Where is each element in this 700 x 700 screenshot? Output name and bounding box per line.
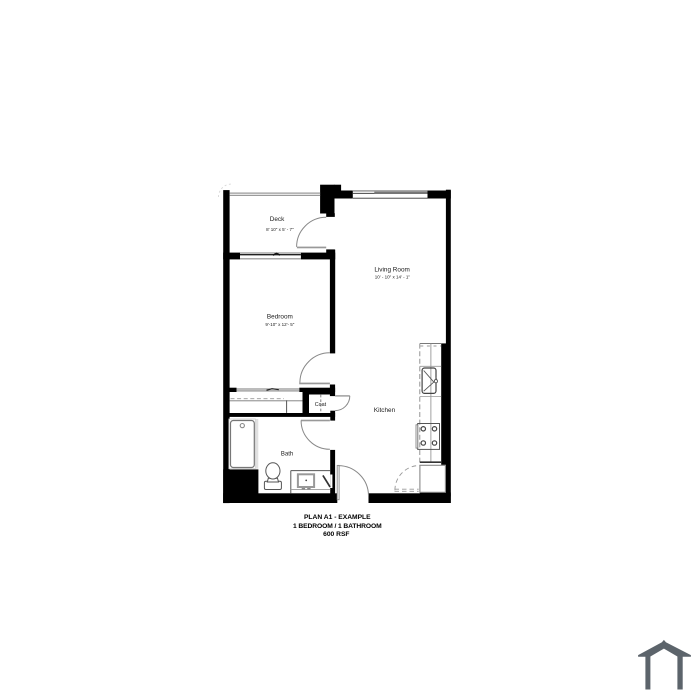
svg-text:10' - 10" x 14' - 1": 10' - 10" x 14' - 1" (375, 274, 411, 279)
svg-text:1 BEDROOM / 1 BATHROOM: 1 BEDROOM / 1 BATHROOM (293, 523, 382, 530)
svg-text:Kitchen: Kitchen (374, 407, 396, 414)
svg-text:8' 10" x 5' - 7": 8' 10" x 5' - 7" (266, 227, 294, 232)
svg-text:9'-10" x 12'- 5": 9'-10" x 12'- 5" (265, 322, 294, 327)
svg-text:Coat: Coat (315, 402, 327, 408)
svg-text:Deck: Deck (270, 216, 285, 223)
svg-text:PLAN A1 - EXAMPLE: PLAN A1 - EXAMPLE (304, 514, 371, 521)
svg-text:600 RSF: 600 RSF (323, 531, 349, 538)
svg-text:Bath: Bath (281, 451, 293, 457)
svg-text:Bedroom: Bedroom (267, 314, 293, 321)
svg-text:Living Room: Living Room (374, 266, 410, 273)
